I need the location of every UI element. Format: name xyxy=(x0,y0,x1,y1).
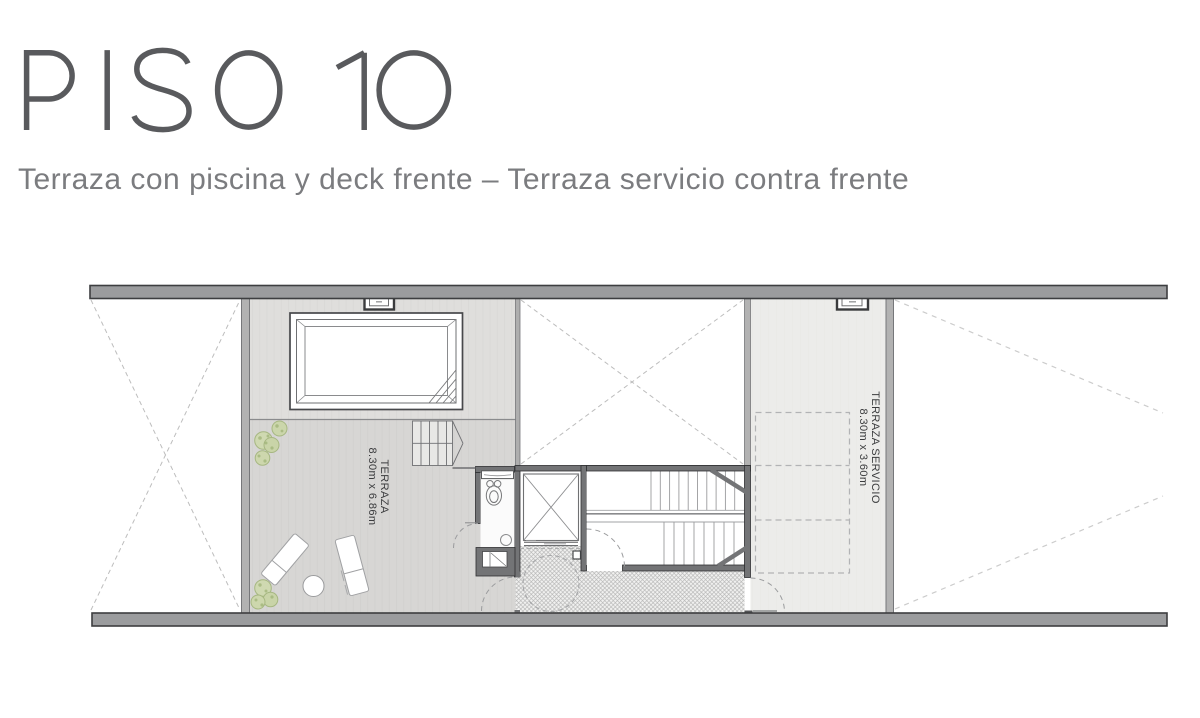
svg-text:8.30m x 6.86m: 8.30m x 6.86m xyxy=(366,448,378,526)
svg-text:8.30m x 3.60m: 8.30m x 3.60m xyxy=(857,409,869,487)
svg-text:TERRAZA: TERRAZA xyxy=(378,459,390,513)
svg-text:TERRAZA SERVICIO: TERRAZA SERVICIO xyxy=(869,391,881,504)
